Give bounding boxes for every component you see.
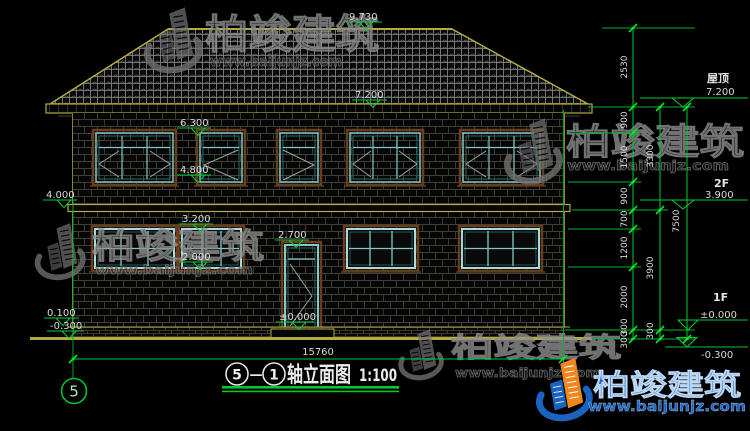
elevation-drawing: 柏竣建筑 www.baijunjz.com 柏竣建筑 www.baijunjz.…	[0, 0, 750, 431]
svg-text:4.800: 4.800	[180, 165, 209, 176]
svg-text:1F: 1F	[713, 291, 728, 304]
svg-text:7500: 7500	[672, 209, 682, 232]
svg-text:3.200: 3.200	[182, 214, 211, 225]
level-marker-1f: 1F ±0.000	[678, 291, 748, 330]
dim-chain-3-values: 7500	[672, 209, 682, 232]
svg-text:5: 5	[69, 383, 79, 401]
svg-text:4.000: 4.000	[46, 190, 75, 201]
svg-text:2.700: 2.700	[278, 230, 307, 241]
svg-text:9.730: 9.730	[349, 12, 378, 23]
level-marker-2f: 2F 3.900	[640, 177, 748, 209]
extension-lines	[565, 28, 695, 339]
svg-text:700: 700	[620, 210, 630, 227]
svg-text:900: 900	[620, 111, 630, 128]
svg-text:2530: 2530	[620, 55, 630, 78]
watermark-bottom: 柏竣建筑 www.baijunjz.com	[395, 328, 621, 381]
svg-text:900: 900	[620, 187, 630, 204]
drawing-title: 轴立面图	[287, 362, 351, 388]
window-1f-3	[341, 226, 421, 272]
svg-text:-0.300: -0.300	[50, 321, 82, 332]
svg-text:7.200: 7.200	[706, 87, 735, 98]
brand-url: www.baijunjz.com	[588, 399, 746, 415]
svg-text:3300: 3300	[646, 144, 656, 167]
watermark-left: 柏竣建筑 www.baijunjz.com	[32, 222, 264, 281]
svg-text:2.000: 2.000	[182, 252, 211, 263]
title-axis-a: 5	[232, 368, 242, 384]
svg-text:2000: 2000	[620, 285, 630, 308]
watermark-brand: 柏竣建筑	[92, 227, 264, 267]
svg-text:300: 300	[620, 331, 630, 348]
svg-text:3900: 3900	[646, 256, 656, 279]
door-step	[271, 329, 334, 338]
title-underline-thin	[222, 391, 399, 393]
axis-bubble-5: 5	[62, 379, 87, 404]
title-block: 5 — 1 轴立面图 1:100	[222, 362, 399, 392]
title-underline-thick	[222, 386, 399, 389]
window-1f-4	[456, 226, 545, 272]
svg-text:1500: 1500	[620, 145, 630, 168]
title-axis-b: 1	[269, 368, 279, 384]
level-marker-roof-right: 屋顶 7.200	[640, 72, 748, 107]
house-elevation	[30, 29, 592, 339]
svg-text:2F: 2F	[714, 177, 729, 190]
level-marker-ground-right: -0.300	[665, 338, 748, 362]
belt-course	[68, 205, 570, 212]
svg-text:1200: 1200	[620, 236, 630, 259]
title-dash: —	[250, 368, 263, 383]
overall-width-value: 15760	[302, 347, 334, 358]
eave-band	[46, 104, 592, 113]
svg-text:300: 300	[646, 322, 656, 339]
svg-text:3.900: 3.900	[705, 190, 734, 201]
svg-text:0.100: 0.100	[47, 308, 76, 319]
svg-text:6.300: 6.300	[180, 118, 209, 129]
drawing-scale: 1:100	[359, 366, 397, 385]
brand-footer: 柏竣建筑 www.baijunjz.com	[533, 357, 746, 422]
dim-chain-1-values: 2530 900 1500 900 700 1200 2000 300 300	[620, 55, 630, 348]
svg-text:±0.000: ±0.000	[700, 310, 737, 321]
brand-name: 柏竣建筑	[593, 368, 741, 402]
svg-text:7.200: 7.200	[355, 90, 384, 101]
watermark-url: www.baijunjz.com	[210, 54, 342, 70]
svg-text:-0.300: -0.300	[701, 350, 733, 361]
svg-text:屋顶: 屋顶	[707, 72, 729, 85]
cad-canvas: 柏竣建筑 www.baijunjz.com 柏竣建筑 www.baijunjz.…	[0, 0, 750, 431]
watermark-url: www.baijunjz.com	[95, 263, 253, 277]
dim-chain-lines	[633, 28, 687, 339]
svg-text:±0.000: ±0.000	[279, 312, 316, 323]
